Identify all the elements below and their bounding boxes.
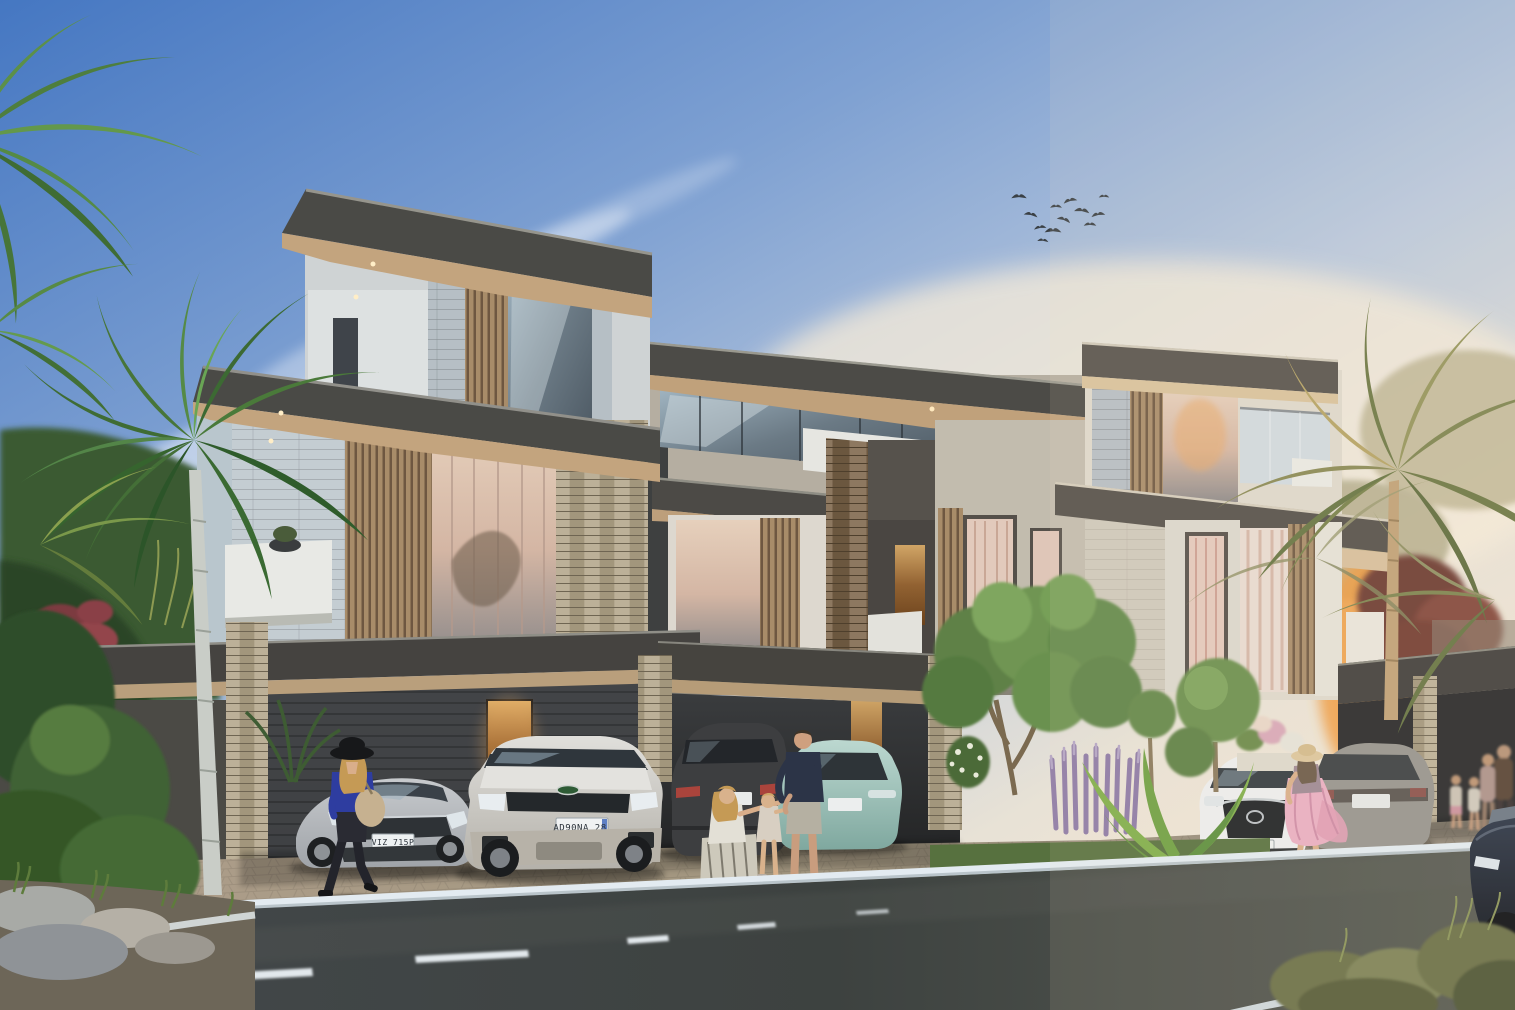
wheel-rim [490, 848, 510, 868]
recessed-light [354, 295, 359, 300]
recessed-light [269, 439, 274, 444]
hat-crown [339, 737, 365, 753]
shorts [786, 798, 822, 834]
wheel-rim [314, 844, 330, 860]
wheel-rim [443, 842, 457, 856]
taillight-left [676, 786, 700, 798]
plate-text-sedan: VIZ 715P [372, 838, 415, 847]
warm-atmosphere-overlay [1050, 0, 1515, 1010]
recessed-light [279, 411, 284, 416]
taillight-right [868, 790, 896, 798]
rock [135, 932, 215, 964]
skid-plate [536, 842, 602, 860]
head [719, 788, 735, 804]
architectural-rendering: VIZ 715P AD90NA 28 43A 517 [0, 0, 1515, 1010]
planter-bush [273, 526, 297, 542]
scene-canvas: VIZ 715P AD90NA 28 43A 517 [0, 0, 1515, 1010]
leg [774, 842, 776, 878]
recessed-light [371, 262, 376, 267]
dark-wall-upper [868, 440, 935, 530]
headlight-left [478, 794, 506, 811]
white-flowers [946, 736, 990, 788]
plate-blank [828, 798, 862, 811]
louver-wall [345, 418, 432, 658]
land-rover-badge [557, 786, 579, 795]
face [346, 762, 358, 774]
wheel-rim [625, 845, 643, 863]
recessed-light [930, 407, 935, 412]
leg [762, 842, 764, 876]
wood-louver-panel [760, 518, 800, 656]
